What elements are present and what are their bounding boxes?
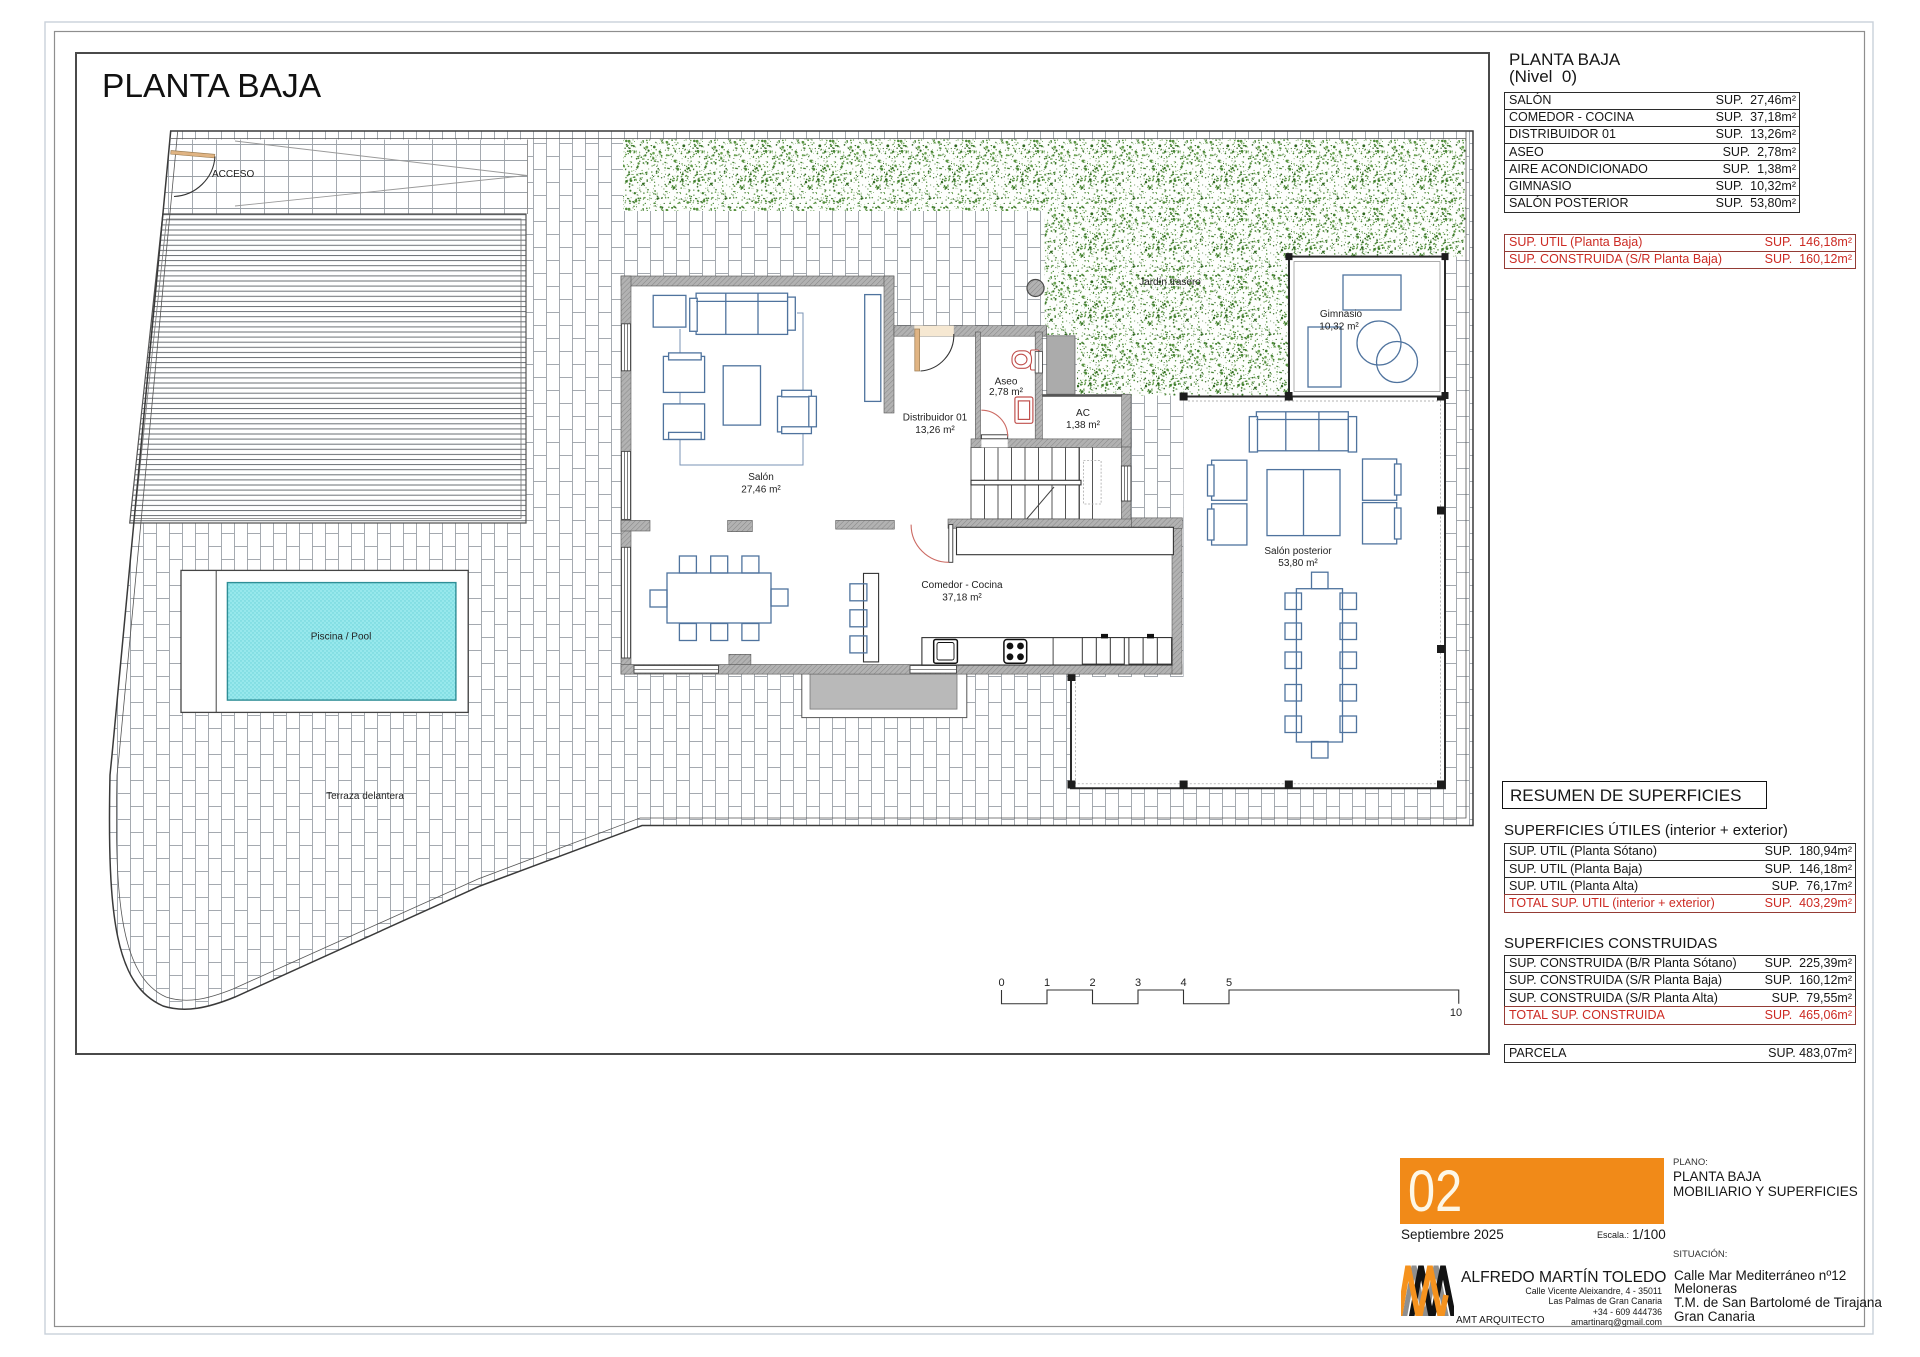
svg-text:PLANTA BAJA: PLANTA BAJA <box>102 68 322 105</box>
svg-text:Salón: Salón <box>748 472 774 483</box>
svg-text:37,18 m²: 37,18 m² <box>942 593 982 604</box>
svg-text:Jardín trasero: Jardín trasero <box>1139 277 1201 288</box>
svg-text:Distribuidor 01: Distribuidor 01 <box>903 413 968 424</box>
svg-text:53,80 m²: 53,80 m² <box>1278 558 1318 569</box>
svg-text:AC: AC <box>1076 408 1090 419</box>
svg-text:1,38 m²: 1,38 m² <box>1066 420 1101 431</box>
svg-text:Comedor - Cocina: Comedor - Cocina <box>921 580 1003 591</box>
svg-text:10,32 m²: 10,32 m² <box>1319 322 1359 333</box>
svg-text:5: 5 <box>1226 977 1232 989</box>
svg-text:10: 10 <box>1450 1007 1462 1019</box>
svg-text:3: 3 <box>1135 977 1141 989</box>
svg-text:1: 1 <box>1044 977 1050 989</box>
svg-text:27,46 m²: 27,46 m² <box>741 485 781 496</box>
svg-text:ACCESO: ACCESO <box>212 169 254 180</box>
svg-text:0: 0 <box>998 977 1004 989</box>
svg-text:4: 4 <box>1180 977 1186 989</box>
svg-text:Gimnasio: Gimnasio <box>1320 309 1363 320</box>
svg-text:Aseo: Aseo <box>995 377 1018 388</box>
svg-text:Piscina / Pool: Piscina / Pool <box>311 632 372 643</box>
svg-text:2,78 m²: 2,78 m² <box>989 387 1024 398</box>
svg-text:Terraza delantera: Terraza delantera <box>326 791 404 802</box>
svg-text:Salón posterior: Salón posterior <box>1264 546 1332 557</box>
svg-text:2: 2 <box>1089 977 1095 989</box>
svg-text:13,26 m²: 13,26 m² <box>915 425 955 436</box>
